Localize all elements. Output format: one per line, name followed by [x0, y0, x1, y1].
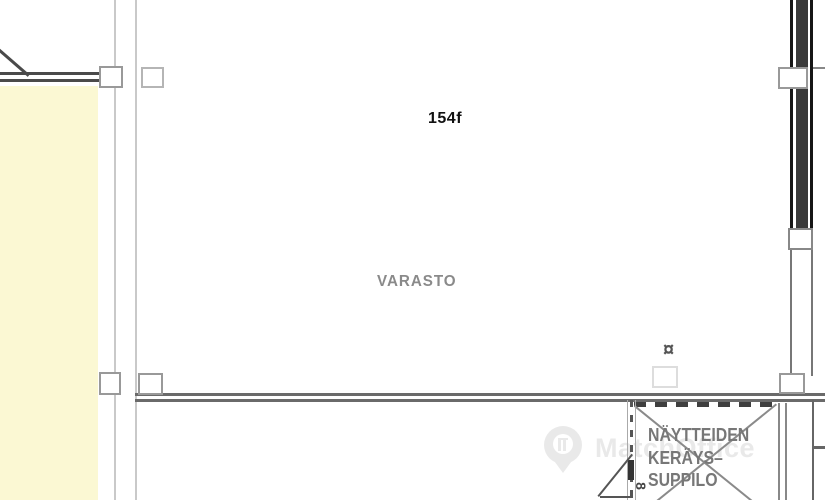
room-number-label: 154f	[428, 110, 462, 128]
column-marker	[99, 66, 123, 88]
room-name-label: VARASTO	[377, 273, 457, 291]
funnel-wall-right-outer	[778, 403, 780, 500]
floor-plan-canvas: MatchOffice 154f VARASTO ¤ NÄYTTEIDEN KE…	[0, 0, 825, 500]
wall-far-right	[812, 400, 814, 500]
door-base-line	[600, 496, 633, 498]
column-marker	[99, 372, 121, 395]
wall-main-horizontal-outer	[135, 393, 825, 396]
wall-top-left-outer	[0, 72, 99, 75]
shaft-wall	[790, 0, 813, 230]
column-axis-symbol: ¤	[663, 340, 674, 360]
wall-right-outer	[790, 246, 792, 376]
column-marker	[778, 67, 808, 89]
column-marker	[138, 373, 163, 395]
funnel-label-line2: KERÄYS–	[648, 447, 749, 470]
column-marker-faint	[652, 366, 678, 388]
funnel-wall-right-inner	[785, 403, 787, 500]
adjacent-room-highlight	[0, 86, 98, 500]
column-marker	[141, 67, 164, 88]
wall-top-left-inner	[0, 79, 99, 82]
grid-line-vertical-2	[135, 0, 137, 500]
wall-stub-right	[813, 446, 825, 449]
funnel-room: NÄYTTEIDEN KERÄYS– SUPPILO	[634, 403, 786, 500]
partition-solid-segment	[628, 460, 634, 480]
column-marker	[788, 228, 813, 250]
funnel-room-label: NÄYTTEIDEN KERÄYS– SUPPILO	[648, 424, 749, 492]
funnel-label-line3: SUPPILO	[648, 469, 749, 492]
column-marker	[779, 373, 805, 394]
wall-right-inner	[811, 246, 813, 376]
funnel-label-line1: NÄYTTEIDEN	[648, 424, 749, 447]
wall-stub-top-right	[813, 67, 825, 69]
pipe-number-label: 8	[634, 482, 648, 490]
